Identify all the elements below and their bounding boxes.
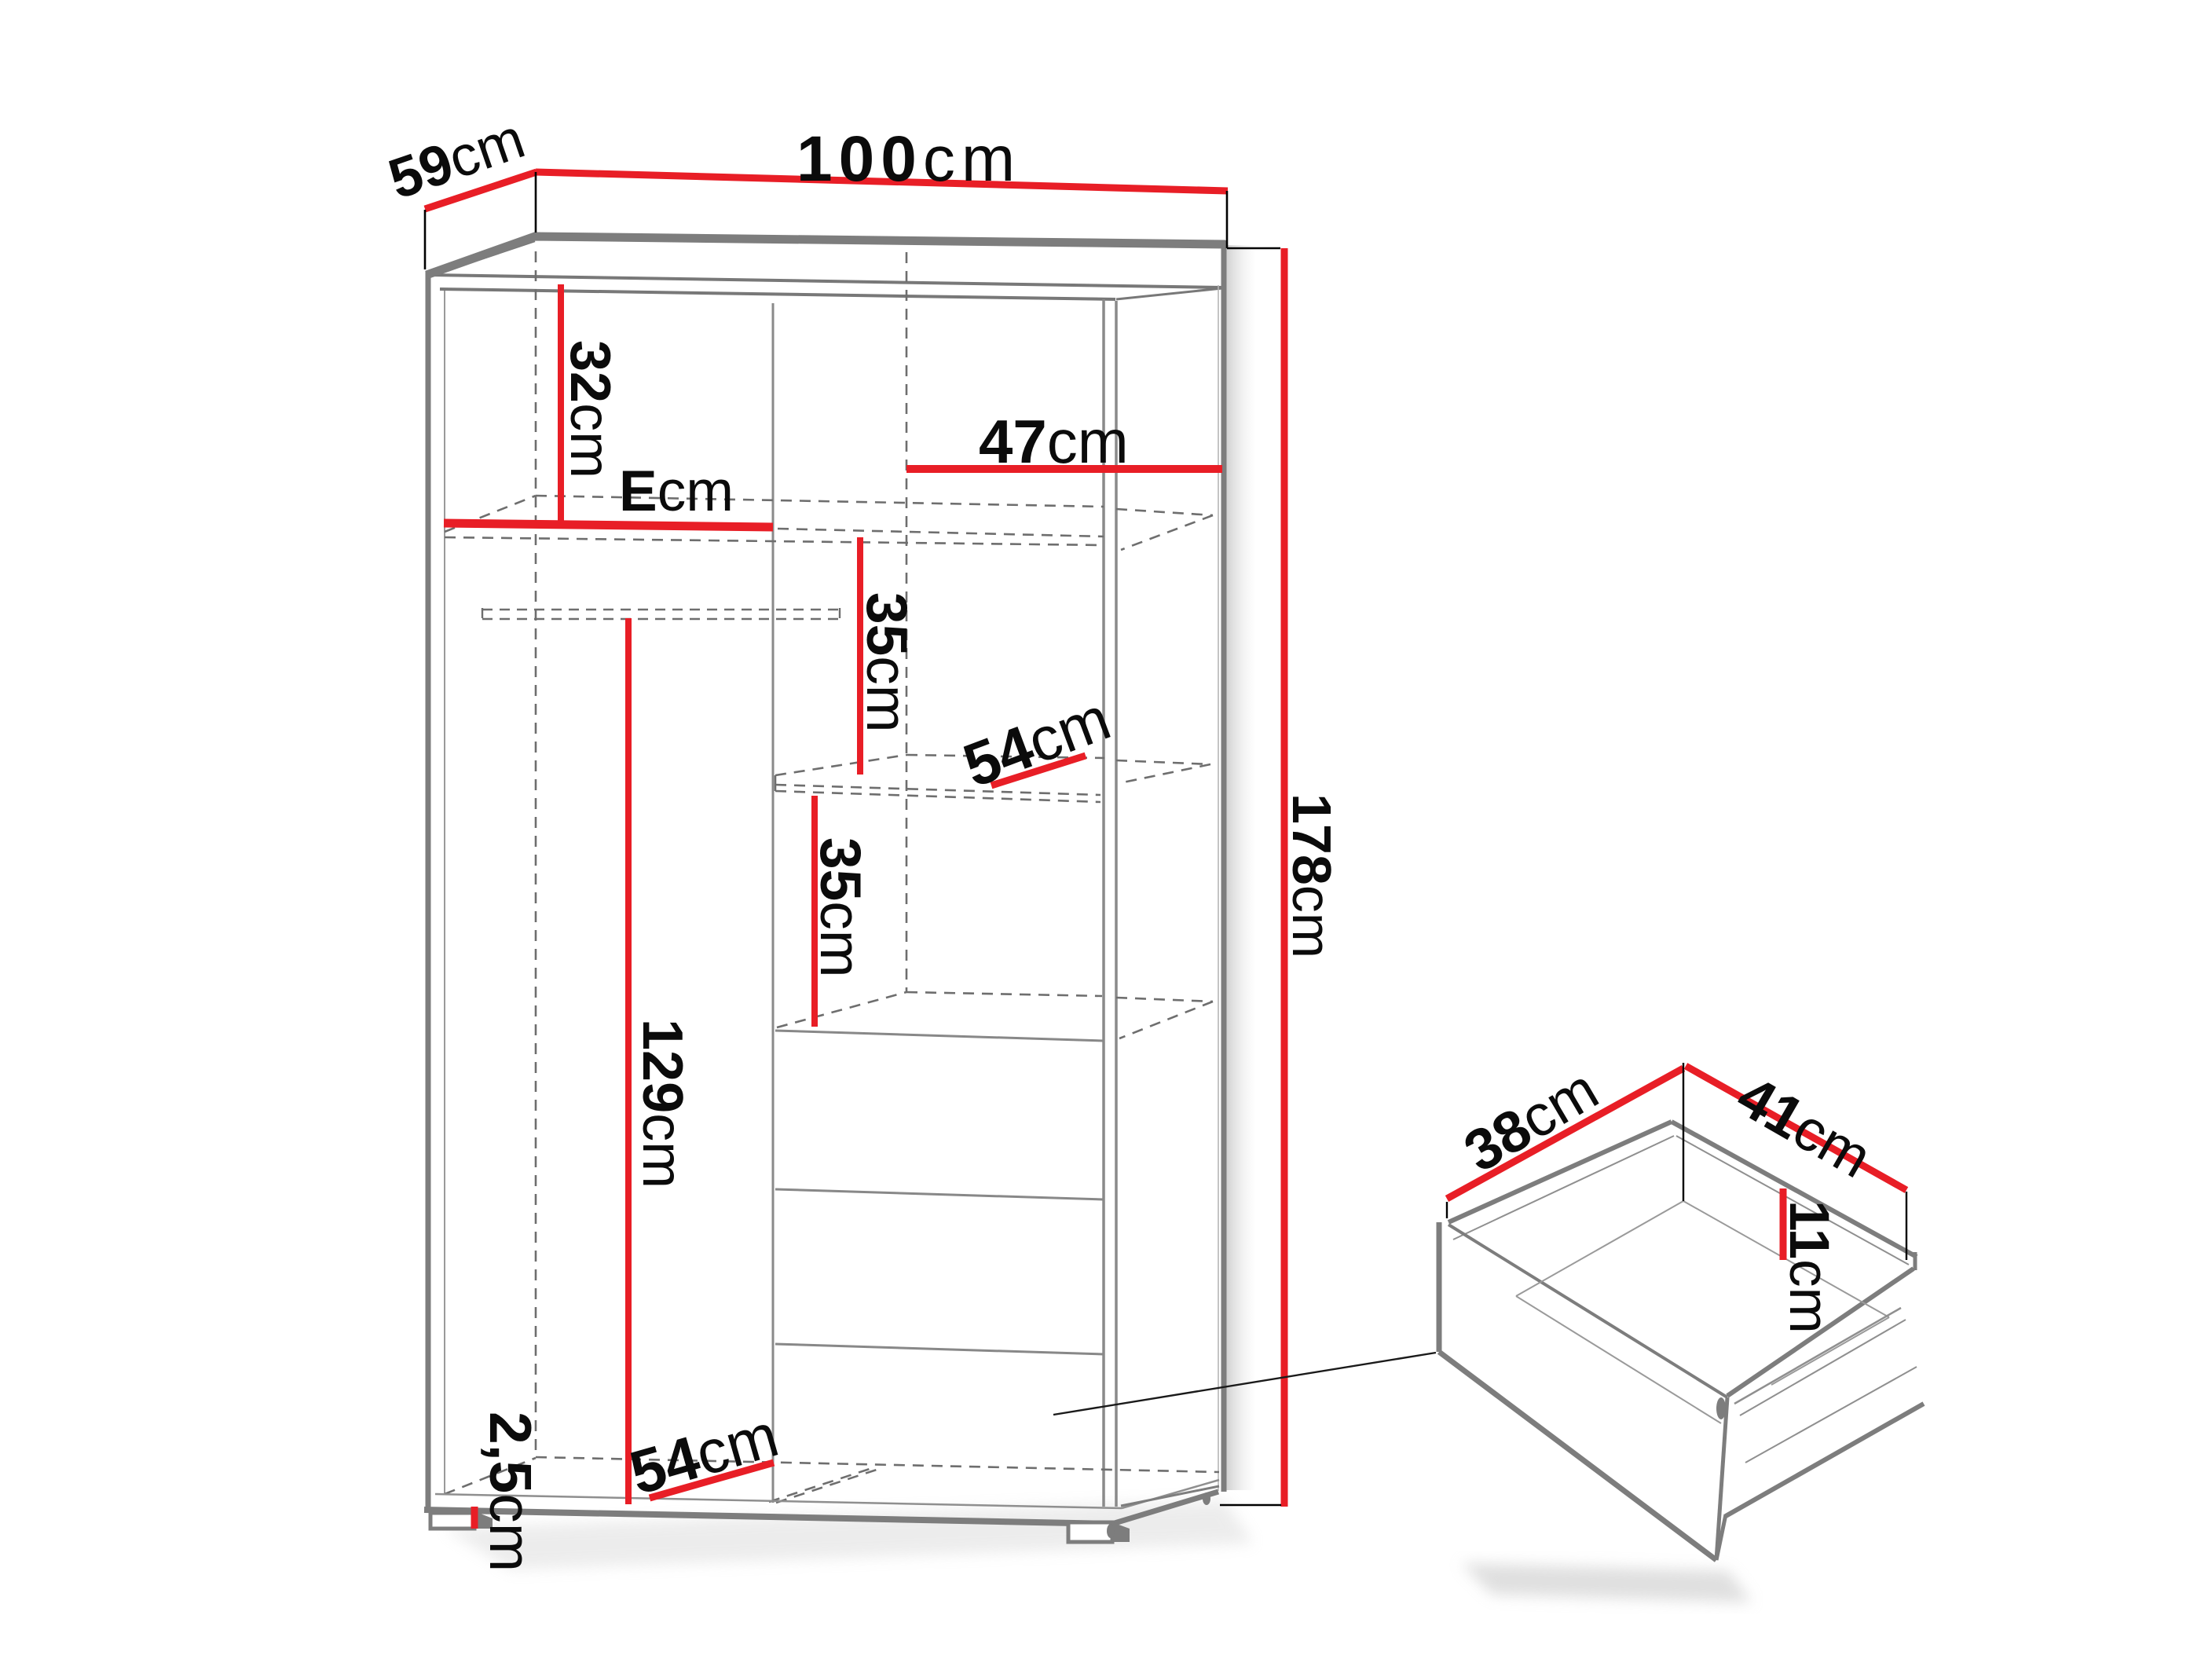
svg-text:Ecm: Ecm <box>619 460 734 523</box>
svg-text:11cm: 11cm <box>1778 1200 1840 1334</box>
svg-text:129cm: 129cm <box>631 1019 694 1188</box>
svg-text:35cm: 35cm <box>855 592 918 733</box>
svg-text:100cm: 100cm <box>797 123 1021 195</box>
svg-text:35cm: 35cm <box>808 837 872 978</box>
svg-text:47cm: 47cm <box>979 407 1129 476</box>
svg-text:2,5cm: 2,5cm <box>478 1412 544 1572</box>
svg-text:32cm: 32cm <box>558 340 621 478</box>
svg-text:178cm: 178cm <box>1281 793 1342 958</box>
